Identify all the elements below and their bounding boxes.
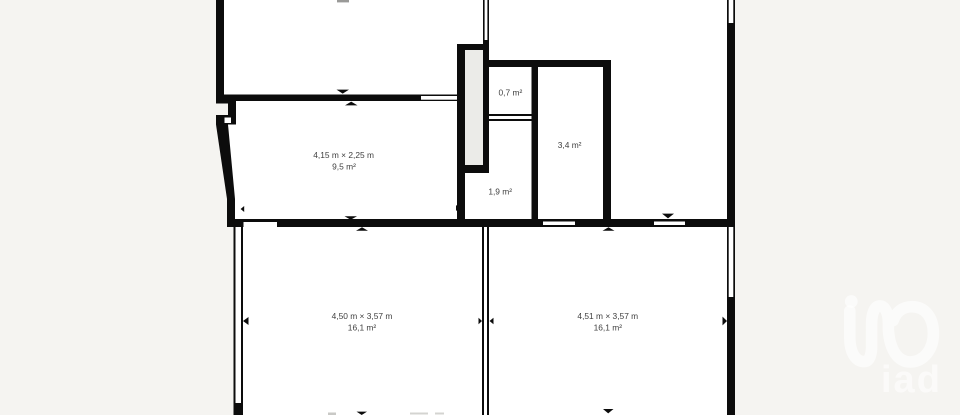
svg-text:0,7 m²: 0,7 m² [499,88,523,98]
svg-text:4,15 m × 2,25 m: 4,15 m × 2,25 m [313,150,374,160]
svg-text:16,1 m²: 16,1 m² [348,323,377,333]
svg-text:4,51 m × 3,57 m: 4,51 m × 3,57 m [577,311,638,321]
svg-text:iad: iad [881,359,942,401]
svg-text:4,50 m × 3,57 m: 4,50 m × 3,57 m [332,311,393,321]
svg-text:9,5 m²: 9,5 m² [332,162,356,172]
svg-text:16,1 m²: 16,1 m² [594,323,623,333]
svg-text:1,9 m²: 1,9 m² [488,186,512,196]
svg-text:3,4 m²: 3,4 m² [558,140,582,150]
